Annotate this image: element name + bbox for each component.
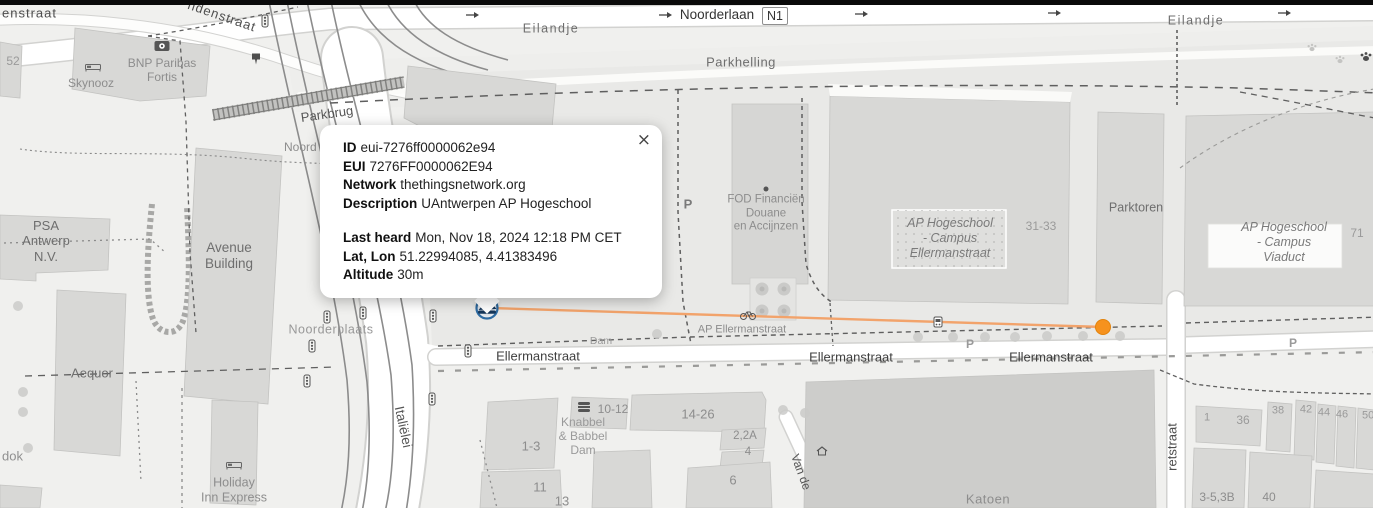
popup-field-altitude-value: 30m [397,267,423,282]
popup-field-altitude-label: Altitude [343,267,393,282]
popup-field-last-heard: Last heardMon, Nov 18, 2024 12:18 PM CET [343,229,639,248]
popup-field-last-heard-label: Last heard [343,230,411,245]
popup-field-last-heard-value: Mon, Nov 18, 2024 12:18 PM CET [415,230,621,245]
popup-field-description-value: UAntwerpen AP Hogeschool [421,196,591,211]
top-bar [0,0,1373,5]
popup-field-description: DescriptionUAntwerpen AP Hogeschool [343,195,639,214]
popup-field-network-label: Network [343,177,396,192]
popup-field-altitude: Altitude30m [343,266,639,285]
device-marker[interactable] [1096,320,1111,335]
gateway-popup: × IDeui-7276ff0000062e94 EUI7276FF000006… [320,125,662,298]
popup-field-latlon: Lat, Lon51.22994085, 4.41383496 [343,248,639,267]
popup-field-network: Networkthethingsnetwork.org [343,176,639,195]
popup-field-id-label: ID [343,140,357,155]
popup-field-id-value: eui-7276ff0000062e94 [361,140,496,155]
popup-field-eui-value: 7276FF0000062E94 [370,159,493,174]
popup-field-id: IDeui-7276ff0000062e94 [343,139,639,158]
popup-field-eui: EUI7276FF0000062E94 [343,158,639,177]
popup-field-network-value: thethingsnetwork.org [400,177,525,192]
map-view: enstraat52SkynoozBNP Paribas Fortisndens… [0,0,1373,508]
close-icon[interactable]: × [637,130,651,150]
route-badge-n1: N1 [762,7,788,25]
popup-field-description-label: Description [343,196,417,211]
popup-field-latlon-label: Lat, Lon [343,249,396,264]
popup-field-eui-label: EUI [343,159,366,174]
map-canvas[interactable] [0,0,1373,508]
popup-field-latlon-value: 51.22994085, 4.41383496 [400,249,558,264]
